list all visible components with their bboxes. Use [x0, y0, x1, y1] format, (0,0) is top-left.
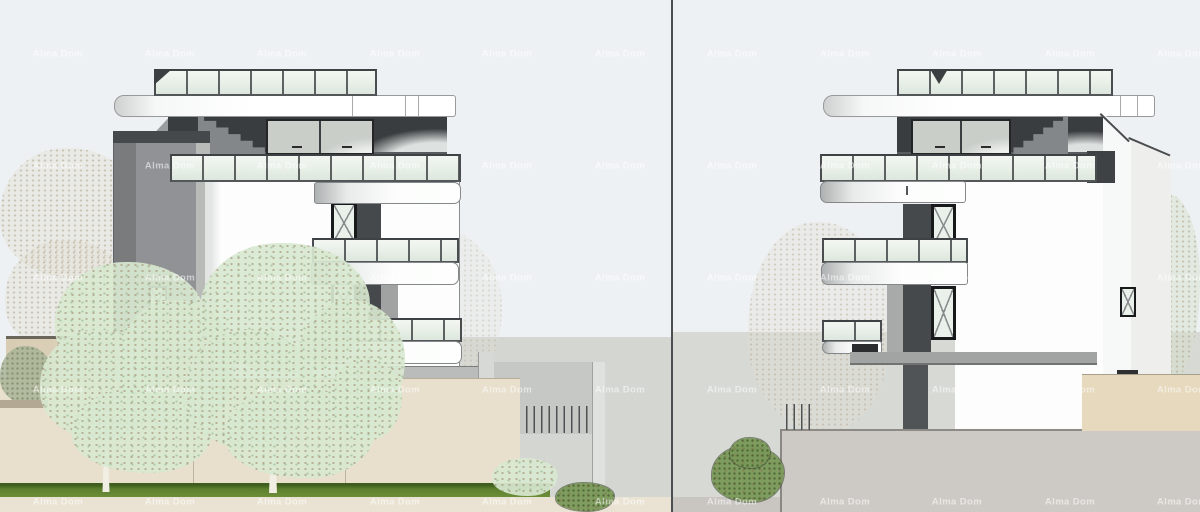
left-terrace-glass-railing [170, 154, 461, 182]
fascia-joint-line [1137, 96, 1138, 116]
right-small-balcony-railing [822, 320, 882, 342]
door-handle-icon [342, 146, 352, 148]
door-handle-icon [935, 146, 945, 148]
door-handle-icon [292, 146, 302, 148]
right-roof-fascia-slab [823, 95, 1155, 117]
right-terrace-railing-posts [786, 404, 812, 430]
elevation-drawing-canvas: Alma DomAlma DomAlma DomAlma DomAlma Dom… [0, 0, 1200, 512]
right-facet-window [1120, 287, 1136, 317]
small-bush-near-divider [556, 483, 614, 511]
foreground-bush [730, 438, 770, 468]
right-recess-column [903, 285, 931, 352]
right-main-wall [955, 180, 1103, 430]
right-balcony-slab-2 [821, 262, 968, 285]
neighbor-wall-near-divider [592, 362, 605, 497]
right-roof-glass-railing [897, 69, 1113, 96]
door-mullion [319, 121, 321, 153]
slab-tick-mark [906, 186, 908, 195]
door-handle-icon [981, 146, 991, 148]
right-beige-wall [1082, 374, 1200, 431]
right-balcony-slab-1 [820, 181, 966, 203]
fascia-joint-line [418, 96, 419, 116]
right-terrace-glass-railing [820, 154, 1097, 182]
right-x-window-lower [931, 286, 956, 340]
right-terrace-wall [780, 429, 1200, 512]
left-balcony-slab-1 [314, 182, 461, 204]
small-tree [492, 458, 558, 496]
left-tower-roof-band [113, 131, 210, 143]
foreground-tree-foliage [330, 358, 402, 440]
right-sliding-glass-door [911, 119, 1011, 155]
left-roof-glass-railing [154, 69, 377, 96]
fascia-joint-line [352, 96, 353, 116]
fascia-joint-line [405, 96, 406, 116]
door-mullion [960, 121, 962, 153]
right-gray-floor-slab [850, 352, 1097, 365]
fascia-joint-line [1120, 96, 1121, 116]
left-sliding-glass-door [266, 119, 374, 155]
right-balcony-railing-2 [822, 238, 968, 263]
scene-divider-line [671, 0, 673, 512]
right-recess-gray-strip [887, 285, 903, 352]
right-recess-column [903, 365, 928, 430]
